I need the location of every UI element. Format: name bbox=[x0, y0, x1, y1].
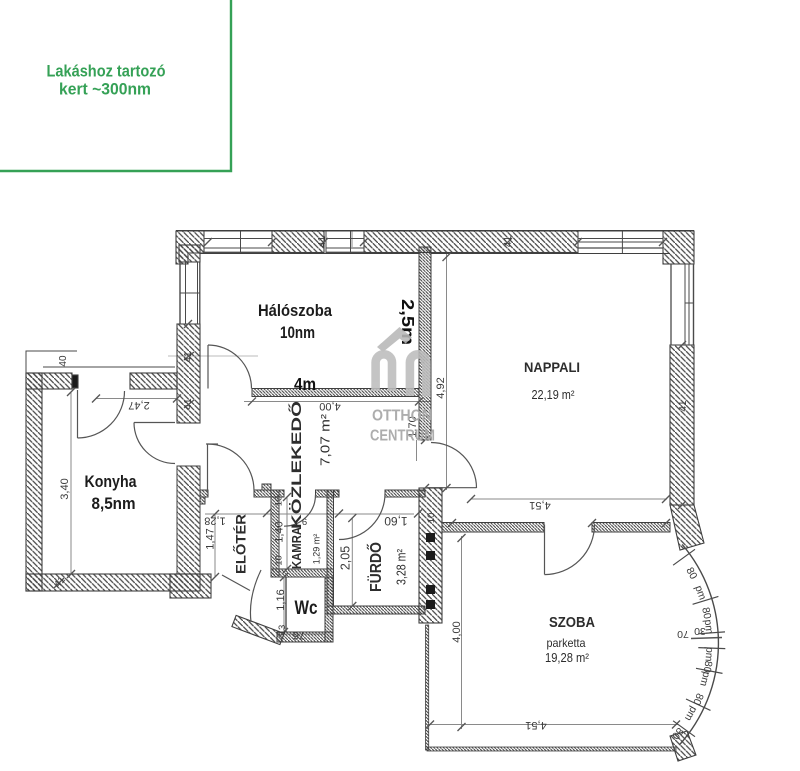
svg-text:4,00: 4,00 bbox=[319, 400, 340, 412]
svg-text:SZOBA: SZOBA bbox=[549, 615, 595, 631]
svg-text:4,51: 4,51 bbox=[529, 499, 550, 511]
svg-text:kert ~300nm: kert ~300nm bbox=[59, 81, 151, 99]
svg-text:KAMRA: KAMRA bbox=[289, 526, 304, 569]
svg-text:OTTHON: OTTHON bbox=[372, 408, 432, 425]
svg-text:NAPPALI: NAPPALI bbox=[524, 359, 580, 375]
svg-text:41: 41 bbox=[183, 351, 194, 363]
svg-text:3,28 m²: 3,28 m² bbox=[394, 548, 409, 585]
svg-text:1,29 m²: 1,29 m² bbox=[312, 534, 322, 565]
svg-text:10nm: 10nm bbox=[280, 324, 315, 342]
svg-text:3,40: 3,40 bbox=[59, 478, 71, 499]
svg-text:19,28 m²: 19,28 m² bbox=[545, 651, 589, 665]
svg-text:ELŐTÉR: ELŐTÉR bbox=[234, 514, 249, 574]
svg-text:22,19 m²: 22,19 m² bbox=[532, 388, 575, 402]
svg-text:1,28: 1,28 bbox=[204, 515, 225, 527]
svg-text:parketta: parketta bbox=[547, 636, 586, 650]
svg-text:41: 41 bbox=[503, 236, 514, 248]
svg-text:10: 10 bbox=[426, 513, 437, 524]
svg-text:2,05: 2,05 bbox=[339, 546, 353, 570]
svg-text:Lakáshoz tartozó: Lakáshoz tartozó bbox=[47, 63, 166, 81]
svg-text:2,47: 2,47 bbox=[128, 399, 149, 411]
svg-text:1,60: 1,60 bbox=[384, 514, 408, 528]
svg-text:4,92: 4,92 bbox=[435, 377, 447, 398]
svg-text:13: 13 bbox=[277, 625, 288, 636]
svg-text:1,16: 1,16 bbox=[275, 589, 287, 610]
svg-text:KÖZLEKEDŐ: KÖZLEKEDŐ bbox=[287, 401, 304, 529]
svg-text:1,47: 1,47 bbox=[205, 528, 217, 549]
svg-text:40: 40 bbox=[58, 355, 69, 367]
svg-text:Konyha: Konyha bbox=[85, 473, 138, 491]
svg-text:4m: 4m bbox=[294, 374, 316, 394]
svg-text:10: 10 bbox=[274, 496, 285, 507]
svg-text:41: 41 bbox=[678, 400, 689, 412]
svg-text:76: 76 bbox=[293, 629, 305, 641]
svg-text:4,00: 4,00 bbox=[451, 621, 463, 642]
svg-text:Wc: Wc bbox=[295, 598, 318, 619]
svg-text:pm: pm bbox=[702, 619, 716, 635]
svg-text:Hálószoba: Hálószoba bbox=[258, 302, 333, 320]
svg-text:FÜRDŐ: FÜRDŐ bbox=[366, 542, 385, 592]
svg-text:41: 41 bbox=[317, 236, 328, 248]
svg-text:4,51: 4,51 bbox=[525, 719, 546, 731]
svg-text:10: 10 bbox=[274, 555, 285, 566]
svg-text:6: 6 bbox=[302, 517, 307, 528]
svg-text:70: 70 bbox=[677, 628, 689, 640]
svg-text:41: 41 bbox=[183, 398, 194, 410]
svg-text:8,5nm: 8,5nm bbox=[92, 495, 136, 513]
svg-text:7,07 m²: 7,07 m² bbox=[319, 414, 333, 466]
svg-text:CENTRUM: CENTRUM bbox=[370, 427, 435, 444]
svg-text:1,40: 1,40 bbox=[274, 521, 286, 542]
